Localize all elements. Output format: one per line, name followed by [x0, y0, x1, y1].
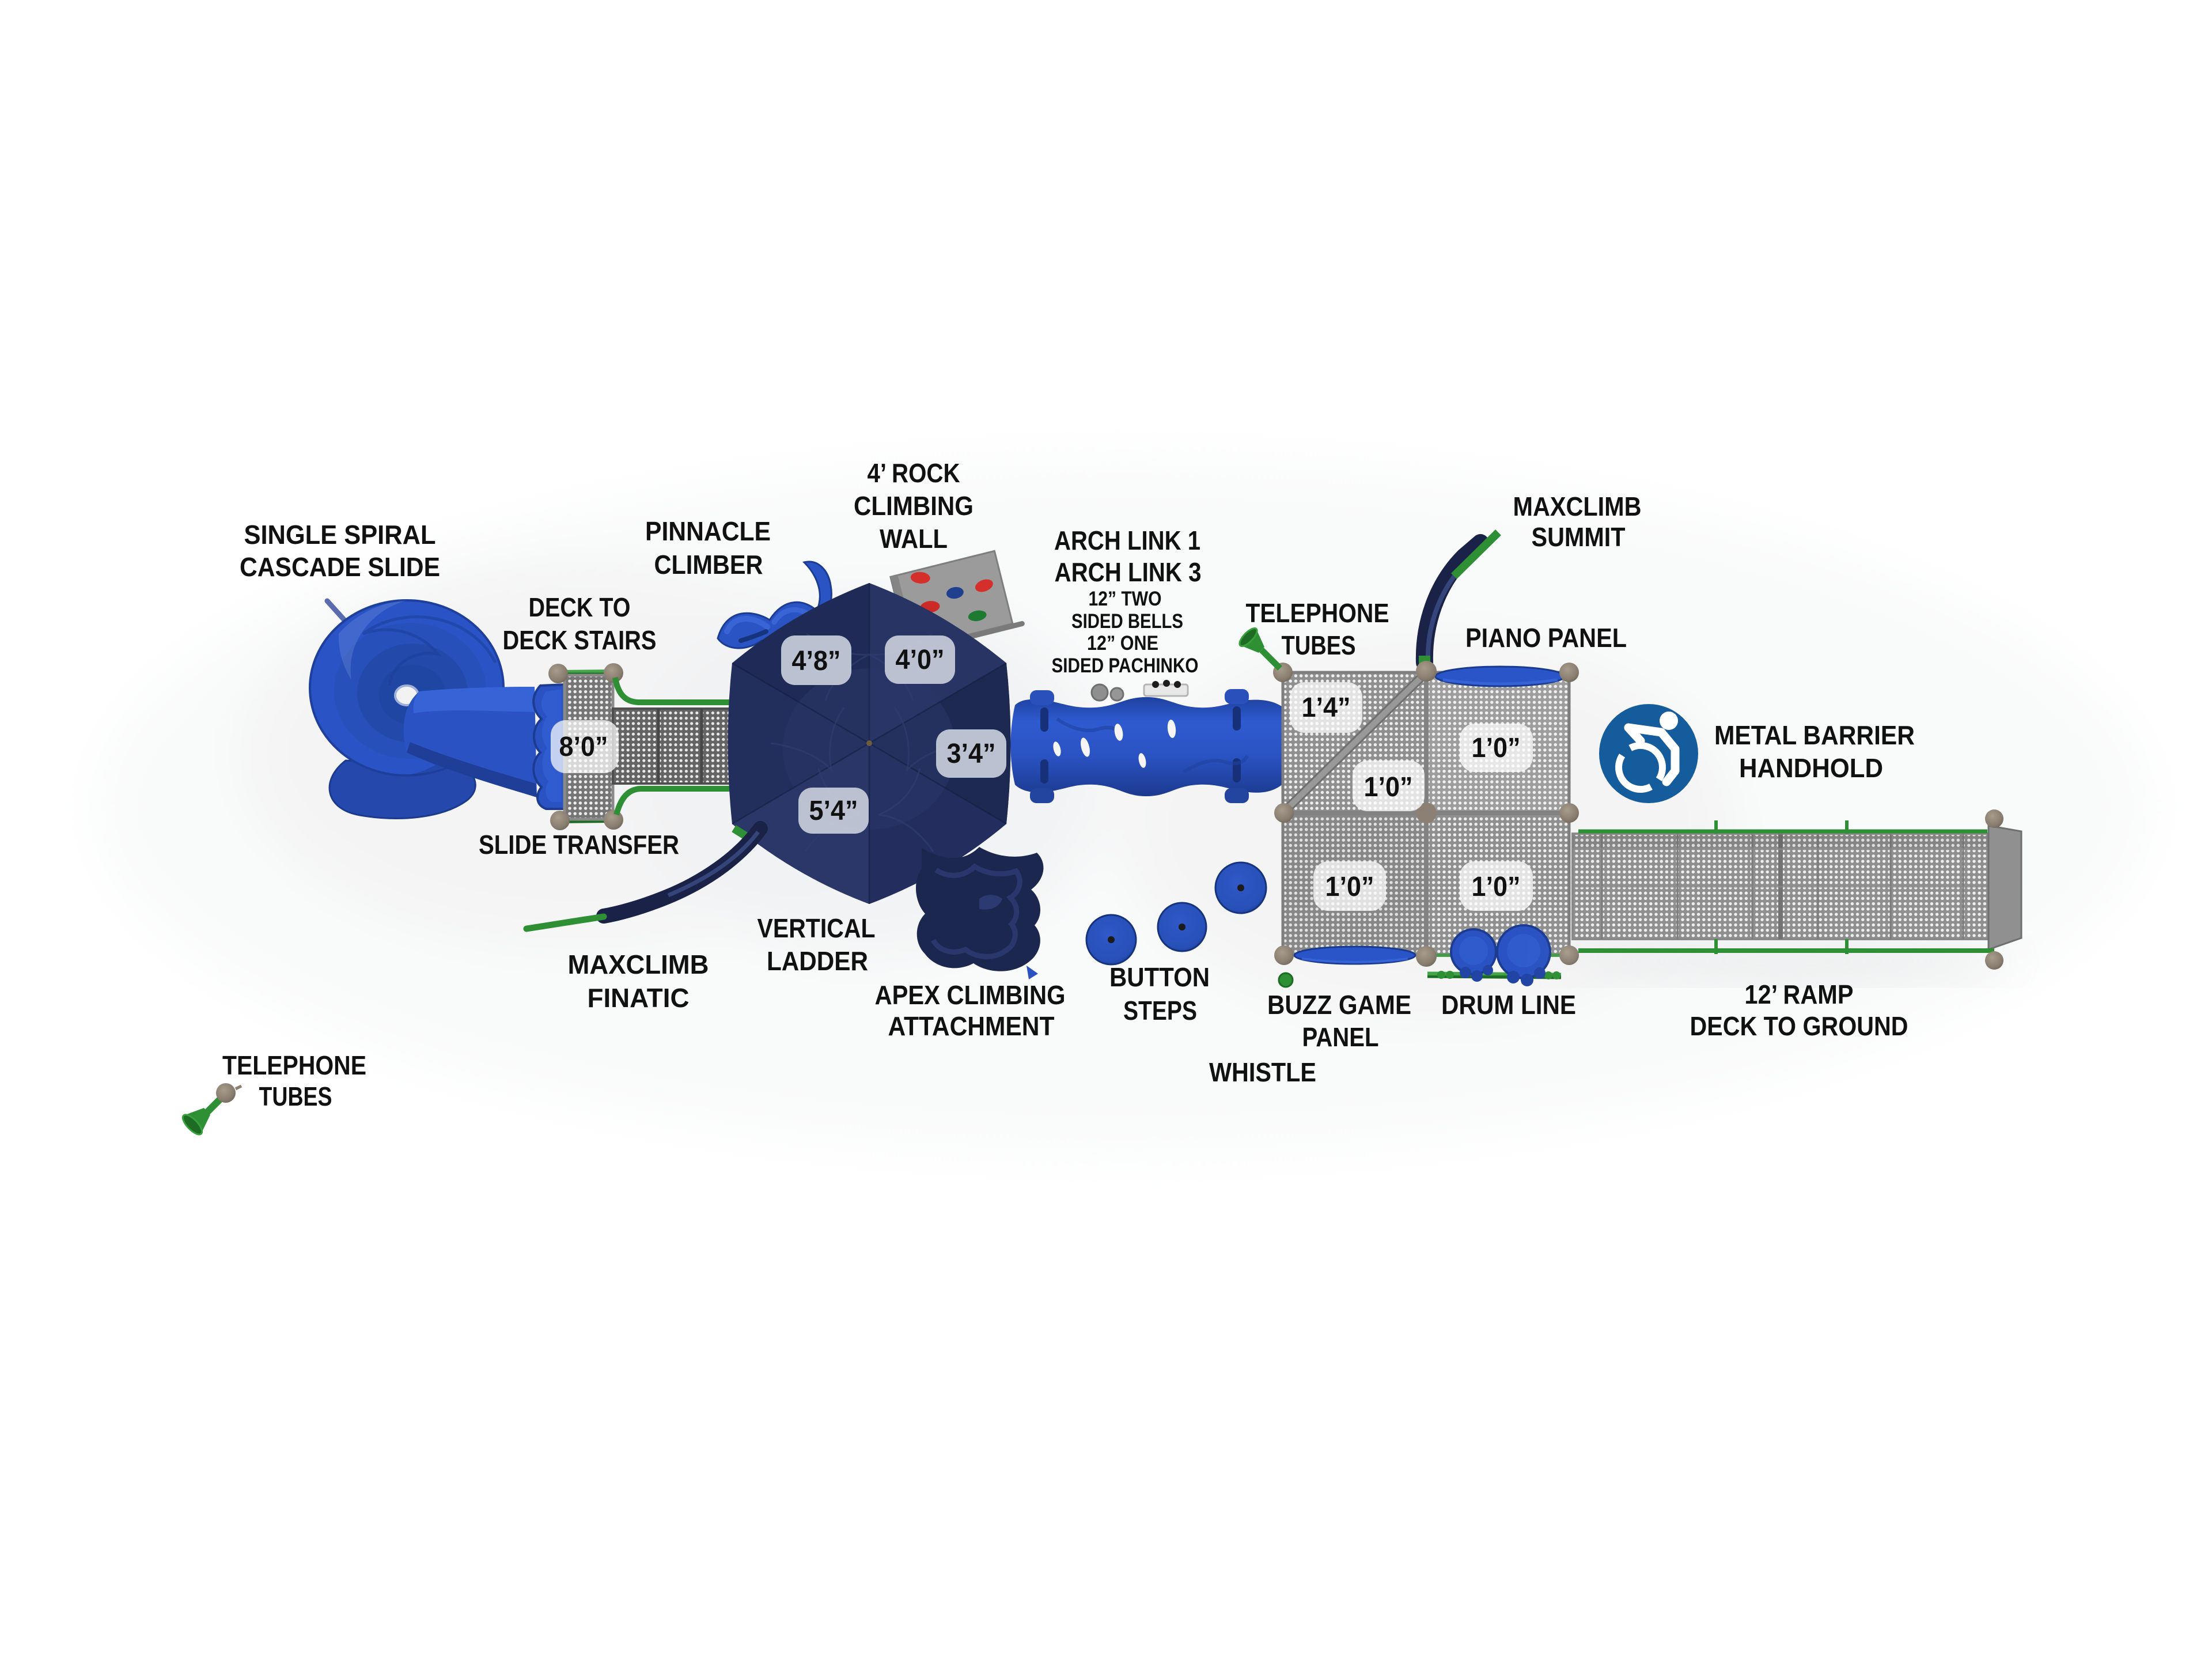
svg-text:SIDED BELLS: SIDED BELLS — [1071, 610, 1183, 633]
svg-text:STEPS: STEPS — [1123, 996, 1197, 1026]
svg-text:PINNACLE: PINNACLE — [645, 516, 771, 546]
svg-text:4’8”: 4’8” — [792, 646, 841, 676]
svg-text:FINATIC: FINATIC — [588, 983, 690, 1013]
svg-text:4’ ROCK: 4’ ROCK — [868, 458, 960, 488]
svg-text:HANDHOLD: HANDHOLD — [1739, 753, 1883, 783]
svg-text:12” ONE: 12” ONE — [1087, 632, 1158, 654]
svg-text:3’4”: 3’4” — [947, 739, 996, 769]
svg-text:ARCH LINK 3: ARCH LINK 3 — [1055, 557, 1202, 587]
svg-text:SIDED PACHINKO: SIDED PACHINKO — [1052, 654, 1199, 677]
svg-text:PANEL: PANEL — [1302, 1022, 1379, 1052]
svg-text:TELEPHONE: TELEPHONE — [222, 1050, 366, 1080]
svg-text:DECK TO GROUND: DECK TO GROUND — [1690, 1011, 1908, 1041]
svg-text:1’0”: 1’0” — [1325, 872, 1374, 902]
svg-text:12’ RAMP: 12’ RAMP — [1745, 979, 1854, 1009]
svg-text:5’4”: 5’4” — [809, 796, 858, 826]
svg-text:SUMMIT: SUMMIT — [1532, 522, 1626, 552]
svg-text:CASCADE SLIDE: CASCADE SLIDE — [240, 552, 440, 582]
svg-text:MAXCLIMB: MAXCLIMB — [1513, 491, 1642, 521]
svg-text:ATTACHMENT: ATTACHMENT — [888, 1011, 1055, 1041]
svg-text:APEX CLIMBING: APEX CLIMBING — [875, 980, 1066, 1010]
svg-text:4’0”: 4’0” — [896, 645, 945, 675]
svg-text:TELEPHONE: TELEPHONE — [1246, 598, 1389, 628]
svg-text:TUBES: TUBES — [1282, 630, 1356, 660]
svg-text:MAXCLIMB: MAXCLIMB — [568, 949, 709, 979]
svg-text:BUTTON: BUTTON — [1109, 962, 1210, 992]
svg-text:SINGLE SPIRAL: SINGLE SPIRAL — [244, 520, 436, 550]
svg-text:CLIMBING: CLIMBING — [854, 491, 974, 521]
svg-text:1’0”: 1’0” — [1472, 733, 1521, 763]
svg-text:PIANO PANEL: PIANO PANEL — [1465, 623, 1627, 653]
svg-text:DECK TO: DECK TO — [529, 592, 631, 622]
svg-text:WALL: WALL — [880, 524, 948, 554]
svg-text:BUZZ GAME: BUZZ GAME — [1267, 990, 1411, 1020]
svg-text:VERTICAL: VERTICAL — [757, 913, 876, 943]
svg-text:8’0”: 8’0” — [559, 732, 608, 762]
svg-text:ARCH LINK 1: ARCH LINK 1 — [1054, 525, 1200, 555]
svg-text:TUBES: TUBES — [259, 1081, 332, 1111]
svg-text:1’0”: 1’0” — [1472, 872, 1521, 902]
svg-text:DECK STAIRS: DECK STAIRS — [503, 625, 657, 655]
svg-text:LADDER: LADDER — [767, 946, 868, 976]
svg-text:1’4”: 1’4” — [1302, 693, 1351, 723]
svg-text:METAL BARRIER: METAL BARRIER — [1714, 720, 1915, 750]
svg-text:1’0”: 1’0” — [1364, 772, 1413, 803]
svg-text:DRUM LINE: DRUM LINE — [1441, 990, 1576, 1020]
svg-text:SLIDE TRANSFER: SLIDE TRANSFER — [479, 830, 679, 860]
svg-text:12” TWO: 12” TWO — [1089, 588, 1162, 610]
svg-text:CLIMBER: CLIMBER — [654, 550, 763, 580]
svg-text:WHISTLE: WHISTLE — [1209, 1057, 1316, 1087]
